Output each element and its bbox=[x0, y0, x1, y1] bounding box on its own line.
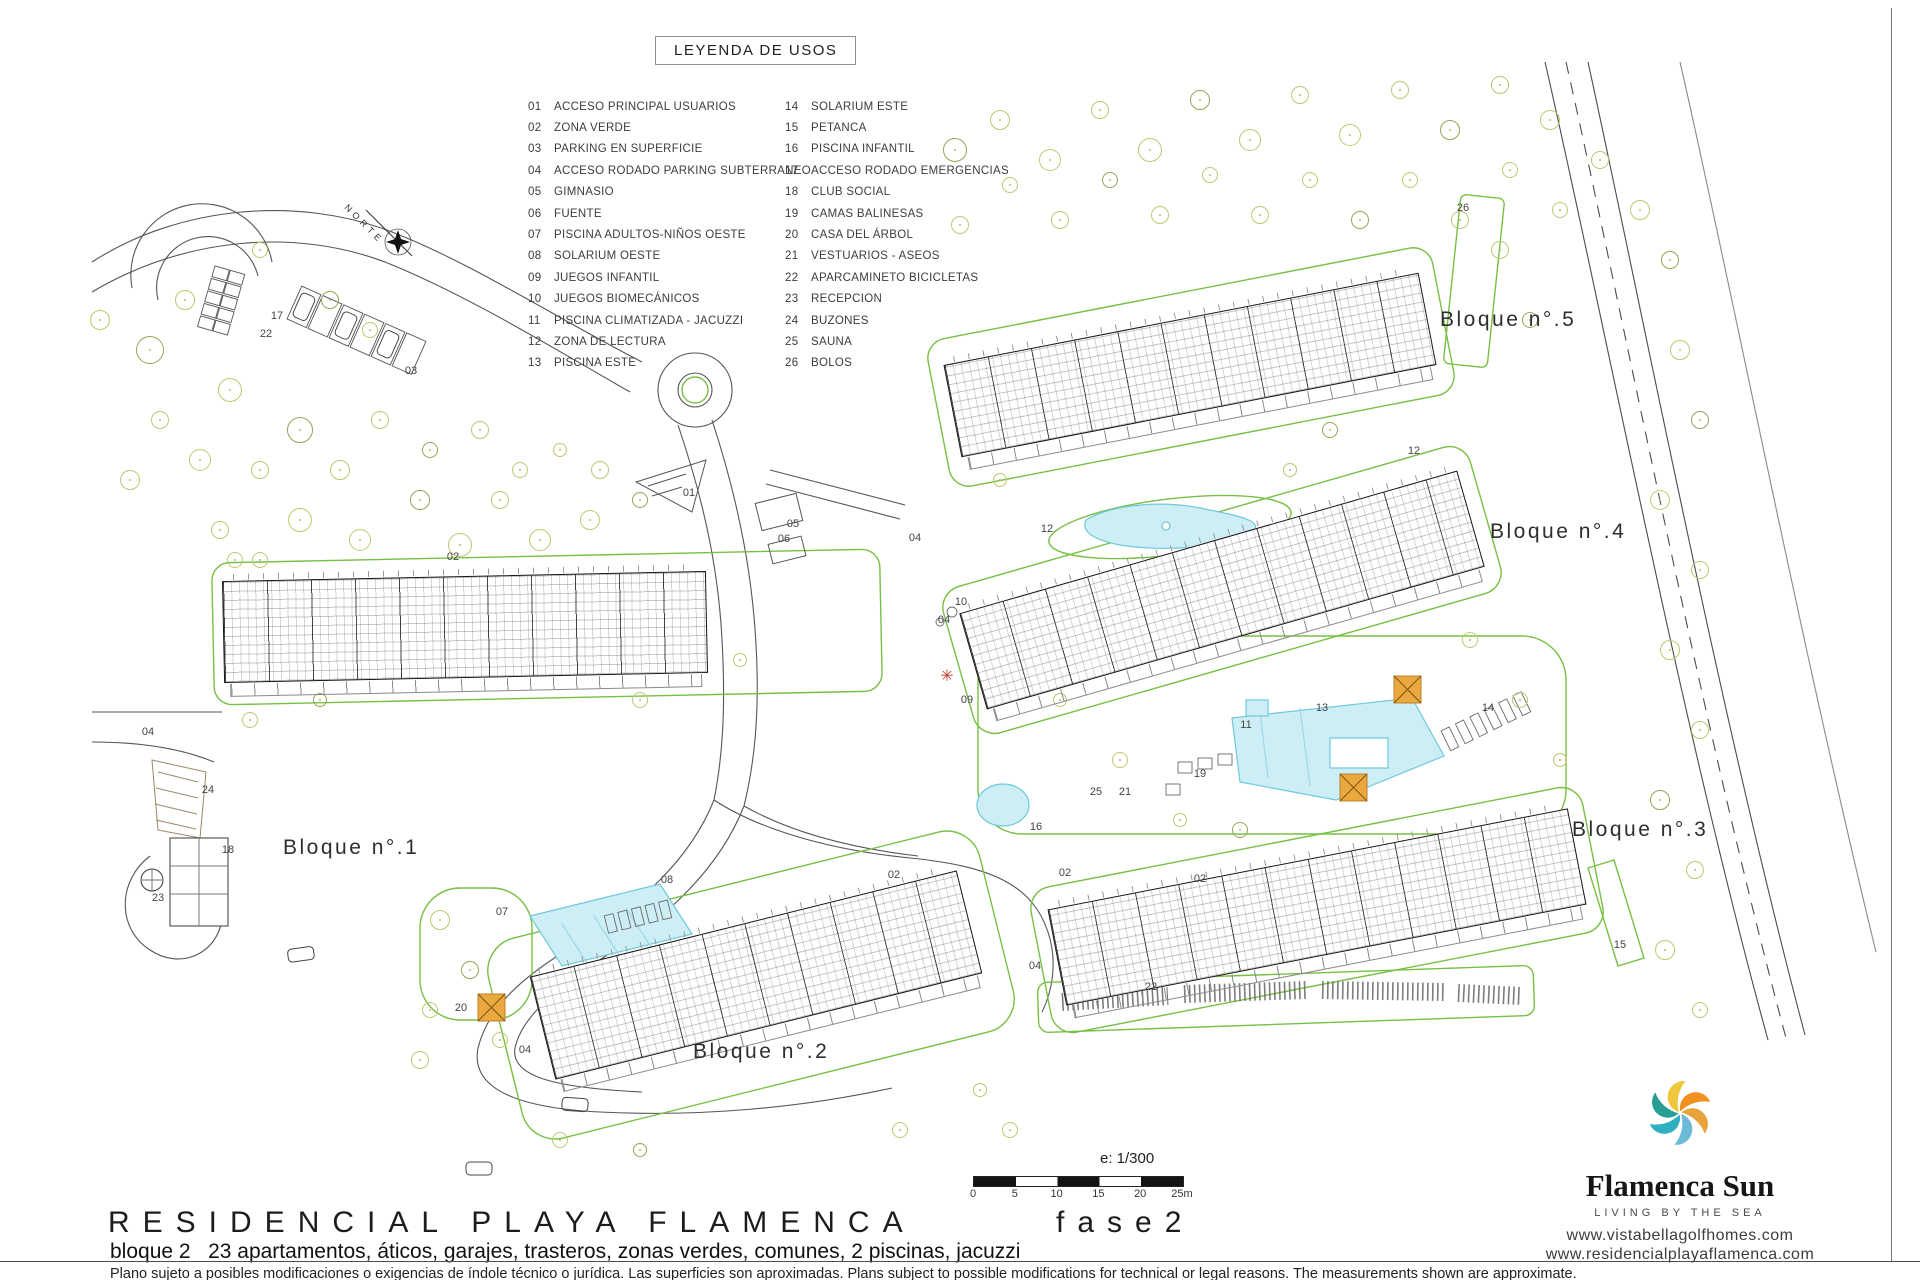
block-name-labels: Bloque n°.1Bloque n°.2Bloque n°.3Bloque … bbox=[0, 0, 1920, 1280]
scale-tick-label: 25m bbox=[1171, 1188, 1192, 1200]
scale-tick-label: 5 bbox=[1012, 1188, 1018, 1200]
brand-url-2: www.residencialplayaflamenca.com bbox=[1480, 1246, 1880, 1264]
brand-url-1: www.vistabellagolfhomes.com bbox=[1480, 1227, 1880, 1245]
scale-tick-label: 15 bbox=[1092, 1188, 1104, 1200]
scale-ratio-label: e: 1/300 bbox=[1100, 1150, 1154, 1167]
scale-bar bbox=[973, 1176, 1184, 1187]
playground-marker-icon: ✳ bbox=[940, 666, 953, 686]
block-label: Bloque n°.5 bbox=[1440, 308, 1576, 332]
block-label: Bloque n°.1 bbox=[283, 836, 419, 860]
sheet-frame-right bbox=[1891, 8, 1892, 1261]
block-label: Bloque n°.4 bbox=[1490, 520, 1626, 544]
block-label: Bloque n°.3 bbox=[1572, 818, 1708, 842]
brand-tagline: LIVING BY THE SEA bbox=[1530, 1207, 1830, 1219]
site-plan-sheet: NORTE LEYENDA DE USOS 01ACCESO PRINCIPAL… bbox=[0, 0, 1920, 1280]
block-label: Bloque n°.2 bbox=[693, 1040, 829, 1064]
brand-name: Flamenca Sun bbox=[1530, 1168, 1830, 1204]
project-title: RESIDENCIAL PLAYA FLAMENCA bbox=[108, 1206, 916, 1240]
scale-tick-label: 0 bbox=[970, 1188, 976, 1200]
phase-title: fase2 bbox=[1056, 1206, 1194, 1240]
scale-ticks: 0510152025m bbox=[973, 1188, 1182, 1202]
scale-tick-label: 10 bbox=[1050, 1188, 1062, 1200]
legal-disclaimer: Plano sujeto a posibles modificaciones o… bbox=[110, 1266, 1577, 1280]
sun-swirl-icon bbox=[1643, 1076, 1717, 1150]
scale-tick-label: 20 bbox=[1134, 1188, 1146, 1200]
